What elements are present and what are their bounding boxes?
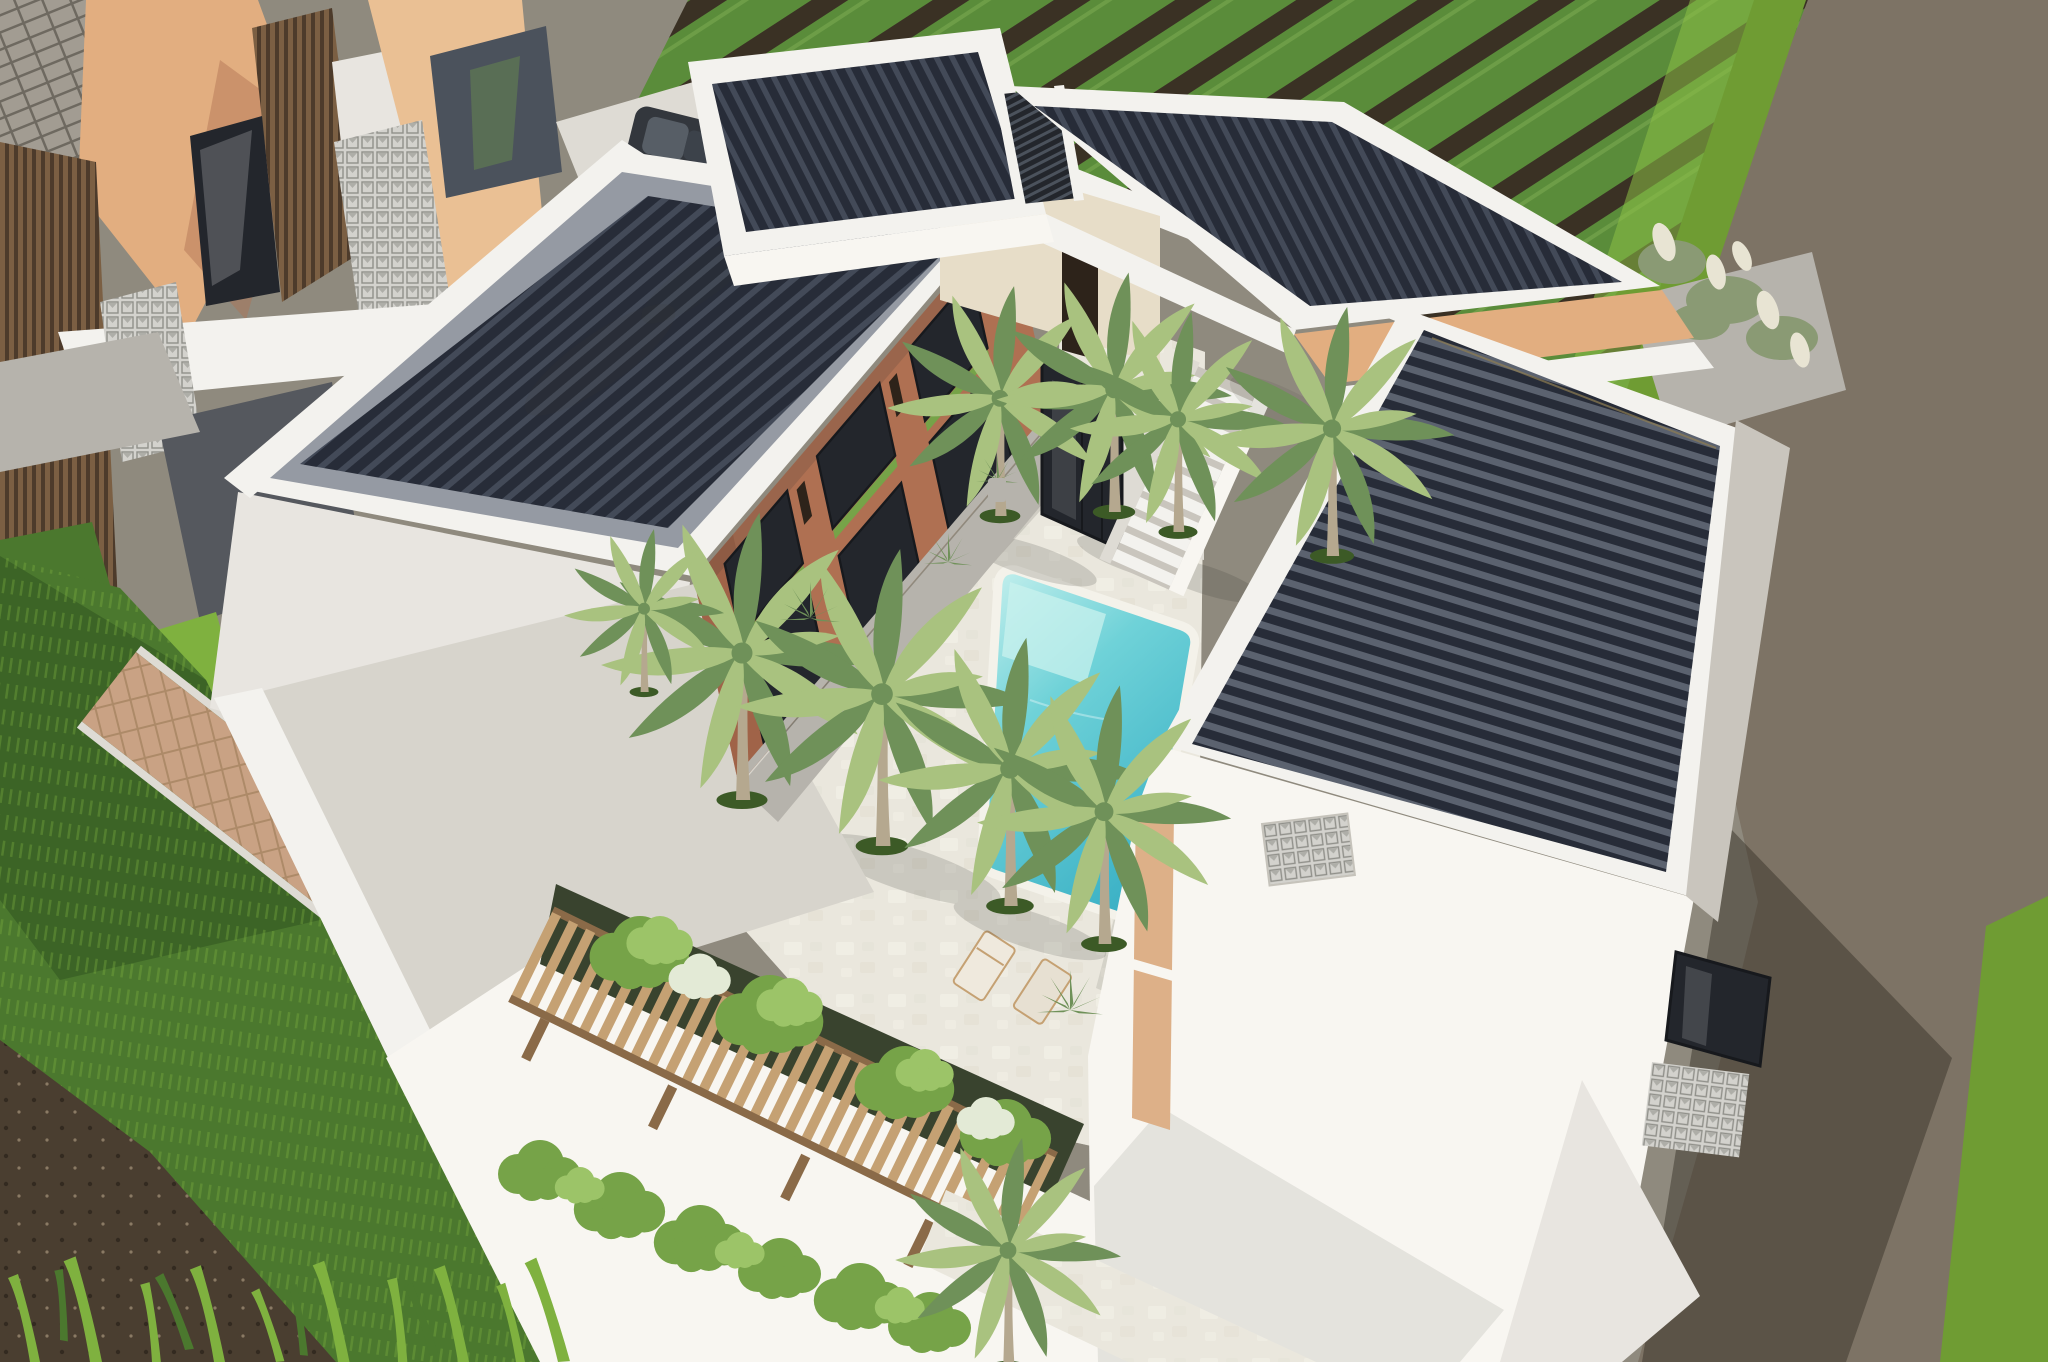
planter-pot [988,478,1006,502]
west-vent-grid [1262,814,1355,886]
villa-aerial-render [0,0,2048,1362]
se-vent-grid [1642,1062,1750,1157]
render-canvas [0,0,2048,1362]
